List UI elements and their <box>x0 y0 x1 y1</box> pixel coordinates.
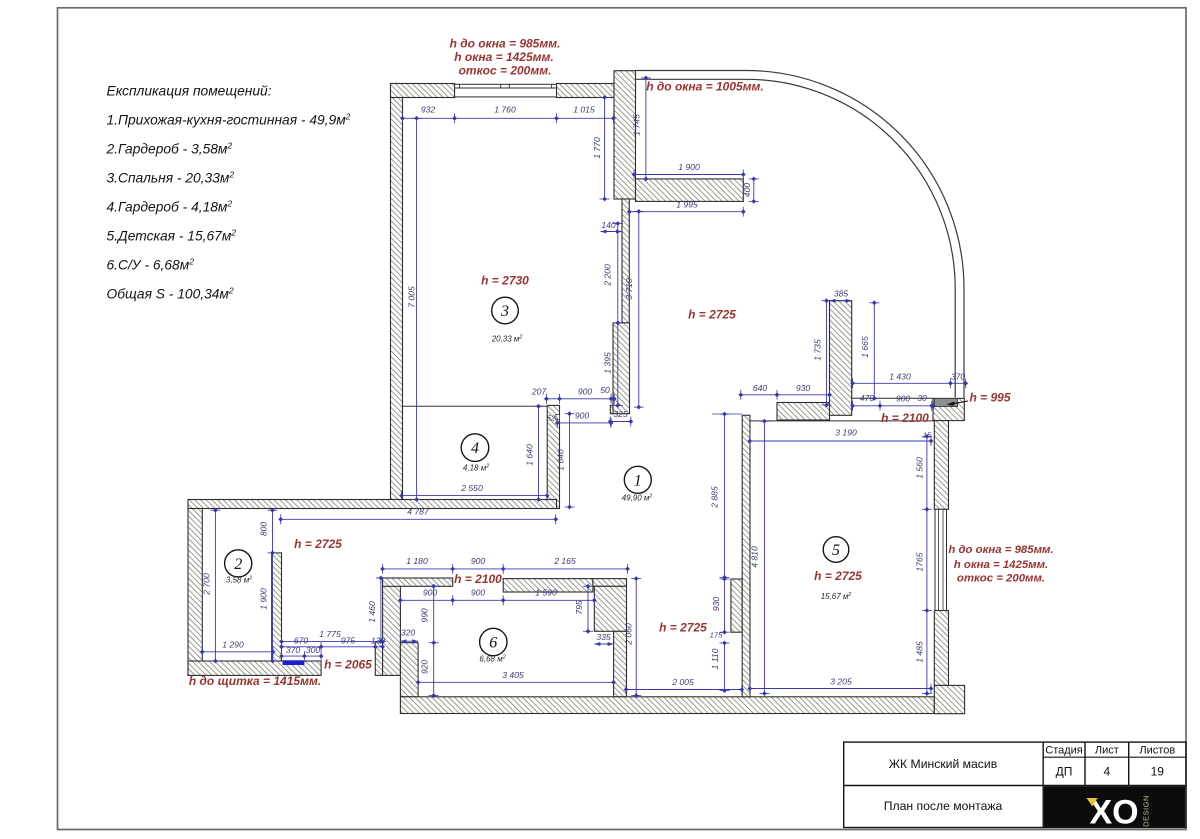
svg-text:4 787: 4 787 <box>407 507 430 517</box>
svg-text:1 640: 1 640 <box>556 449 566 471</box>
svg-text:52: 52 <box>547 414 556 423</box>
svg-text:7 005: 7 005 <box>407 286 417 308</box>
svg-text:h окна = 1425мм.: h окна = 1425мм. <box>954 559 1048 571</box>
svg-text:План после монтажа: План после монтажа <box>884 799 1003 813</box>
svg-text:3 205: 3 205 <box>830 676 852 686</box>
svg-text:откос = 200мм.: откос = 200мм. <box>459 64 552 78</box>
svg-text:1 900: 1 900 <box>678 162 700 172</box>
svg-text:920: 920 <box>420 660 430 675</box>
svg-text:5: 5 <box>832 542 840 559</box>
svg-text:Лист: Лист <box>1095 745 1119 757</box>
svg-text:h до окна = 985мм.: h до окна = 985мм. <box>948 544 1053 556</box>
svg-text:3 405: 3 405 <box>502 670 524 680</box>
svg-text:1 430: 1 430 <box>889 372 911 382</box>
svg-text:50: 50 <box>600 385 610 395</box>
svg-text:370: 370 <box>286 645 301 655</box>
svg-text:1 460: 1 460 <box>367 601 377 623</box>
svg-text:ЖК Минский масив: ЖК Минский масив <box>889 757 997 771</box>
svg-text:1 590: 1 590 <box>535 588 557 598</box>
svg-text:1.Прихожая-кухня-гостинная - 4: 1.Прихожая-кухня-гостинная - 49,9м2 <box>107 111 351 127</box>
svg-text:h = 2725: h = 2725 <box>814 569 862 583</box>
svg-text:2.Гардероб - 3,58м2: 2.Гардероб - 3,58м2 <box>106 140 233 156</box>
svg-text:2 200: 2 200 <box>603 264 613 287</box>
svg-text:h до окна = 985мм.: h до окна = 985мм. <box>450 37 561 51</box>
svg-text:900: 900 <box>896 393 911 403</box>
svg-text:1 665: 1 665 <box>860 336 870 358</box>
svg-text:930: 930 <box>711 597 721 612</box>
svg-text:900: 900 <box>471 556 486 566</box>
svg-text:1 015: 1 015 <box>573 105 595 115</box>
svg-text:975: 975 <box>341 636 356 646</box>
svg-text:1 395: 1 395 <box>603 352 613 374</box>
svg-text:h = 2065: h = 2065 <box>324 658 372 672</box>
svg-text:2: 2 <box>234 556 242 573</box>
svg-text:30: 30 <box>917 393 927 403</box>
svg-text:900: 900 <box>471 588 486 598</box>
svg-text:19: 19 <box>1151 765 1165 779</box>
svg-text:385: 385 <box>834 289 849 299</box>
svg-text:400: 400 <box>742 183 752 198</box>
svg-text:1 110: 1 110 <box>710 648 720 669</box>
svg-text:335: 335 <box>596 632 611 642</box>
svg-text:1 640: 1 640 <box>525 444 535 466</box>
svg-text:990: 990 <box>420 608 430 623</box>
svg-text:ДП: ДП <box>1056 765 1073 779</box>
svg-text:6.С/У - 6,68м2: 6.С/У - 6,68м2 <box>107 256 195 272</box>
svg-text:20,33 м2: 20,33 м2 <box>491 335 523 344</box>
svg-text:1 900: 1 900 <box>259 588 269 610</box>
svg-text:15,67 м2: 15,67 м2 <box>821 592 852 601</box>
svg-text:930: 930 <box>796 383 811 393</box>
svg-text:XO: XO <box>1089 794 1138 832</box>
svg-text:900: 900 <box>578 386 593 396</box>
svg-text:h = 995: h = 995 <box>969 391 1010 405</box>
svg-text:1 485: 1 485 <box>915 641 925 663</box>
svg-text:4: 4 <box>1103 765 1110 779</box>
svg-text:6: 6 <box>489 635 497 652</box>
svg-text:2 005: 2 005 <box>671 677 694 687</box>
svg-text:1 560: 1 560 <box>915 457 925 479</box>
svg-text:2 700: 2 700 <box>202 573 212 596</box>
svg-text:900: 900 <box>575 411 590 421</box>
svg-text:2 165: 2 165 <box>553 556 576 566</box>
svg-text:640: 640 <box>753 383 768 393</box>
svg-text:h = 2725: h = 2725 <box>688 308 736 322</box>
svg-text:h = 2100: h = 2100 <box>881 411 929 425</box>
svg-text:325: 325 <box>613 409 628 419</box>
svg-text:4 810: 4 810 <box>750 546 760 568</box>
svg-text:3 190: 3 190 <box>835 428 857 438</box>
svg-text:1 735: 1 735 <box>813 339 823 361</box>
svg-text:Стадия: Стадия <box>1045 745 1083 757</box>
svg-text:300: 300 <box>306 645 321 655</box>
svg-text:1 290: 1 290 <box>222 640 244 650</box>
svg-text:4,18 м2: 4,18 м2 <box>463 464 489 473</box>
svg-text:207: 207 <box>531 386 548 396</box>
svg-text:3.Спальня - 20,33м2: 3.Спальня - 20,33м2 <box>107 169 235 185</box>
svg-text:3,58 м2: 3,58 м2 <box>226 576 252 585</box>
svg-text:1 180: 1 180 <box>406 556 428 566</box>
svg-text:6,68 м2: 6,68 м2 <box>479 655 505 664</box>
svg-text:320: 320 <box>401 628 416 638</box>
svg-text:932: 932 <box>421 105 436 115</box>
svg-text:140: 140 <box>601 220 616 230</box>
svg-text:2 550: 2 550 <box>460 483 483 493</box>
svg-text:2 885: 2 885 <box>710 486 720 509</box>
svg-text:3 710: 3 710 <box>624 278 634 300</box>
svg-text:откос = 200мм.: откос = 200мм. <box>957 573 1045 585</box>
svg-text:h окна = 1425мм.: h окна = 1425мм. <box>454 50 553 64</box>
svg-text:370: 370 <box>951 372 966 382</box>
svg-text:DESIGN: DESIGN <box>1142 795 1151 827</box>
svg-text:h до окна = 1005мм.: h до окна = 1005мм. <box>646 80 764 94</box>
svg-text:h = 2725: h = 2725 <box>659 621 707 635</box>
svg-text:175: 175 <box>710 631 723 640</box>
svg-text:3: 3 <box>500 303 509 320</box>
svg-text:Експликация помещений:: Експликация помещений: <box>107 83 272 98</box>
svg-text:Листов: Листов <box>1139 745 1175 757</box>
svg-text:900: 900 <box>423 588 438 598</box>
svg-text:2 060: 2 060 <box>624 623 634 646</box>
svg-text:800: 800 <box>259 522 269 537</box>
svg-text:h до щитка = 1415мм.: h до щитка = 1415мм. <box>189 674 321 688</box>
svg-text:4: 4 <box>471 440 479 457</box>
svg-text:Общая S - 100,34м2: Общая S - 100,34м2 <box>107 285 234 301</box>
svg-text:130: 130 <box>371 636 386 646</box>
svg-text:1: 1 <box>634 472 642 489</box>
svg-text:1 775: 1 775 <box>319 629 341 639</box>
svg-text:1 760: 1 760 <box>494 105 516 115</box>
svg-text:h = 2725: h = 2725 <box>294 537 342 551</box>
svg-text:795: 795 <box>574 600 584 615</box>
svg-text:1 770: 1 770 <box>592 137 602 159</box>
svg-text:h = 2100: h = 2100 <box>454 572 502 586</box>
svg-text:1 995: 1 995 <box>676 199 698 209</box>
svg-text:5.Детская - 15,67м2: 5.Детская - 15,67м2 <box>107 227 237 243</box>
svg-text:4.Гардероб - 4,18м2: 4.Гардероб - 4,18м2 <box>107 198 233 214</box>
svg-text:h = 2730: h = 2730 <box>481 274 529 288</box>
svg-text:1 745: 1 745 <box>632 114 642 136</box>
svg-text:1765: 1765 <box>915 552 925 571</box>
svg-text:49,90 м2: 49,90 м2 <box>622 494 653 503</box>
